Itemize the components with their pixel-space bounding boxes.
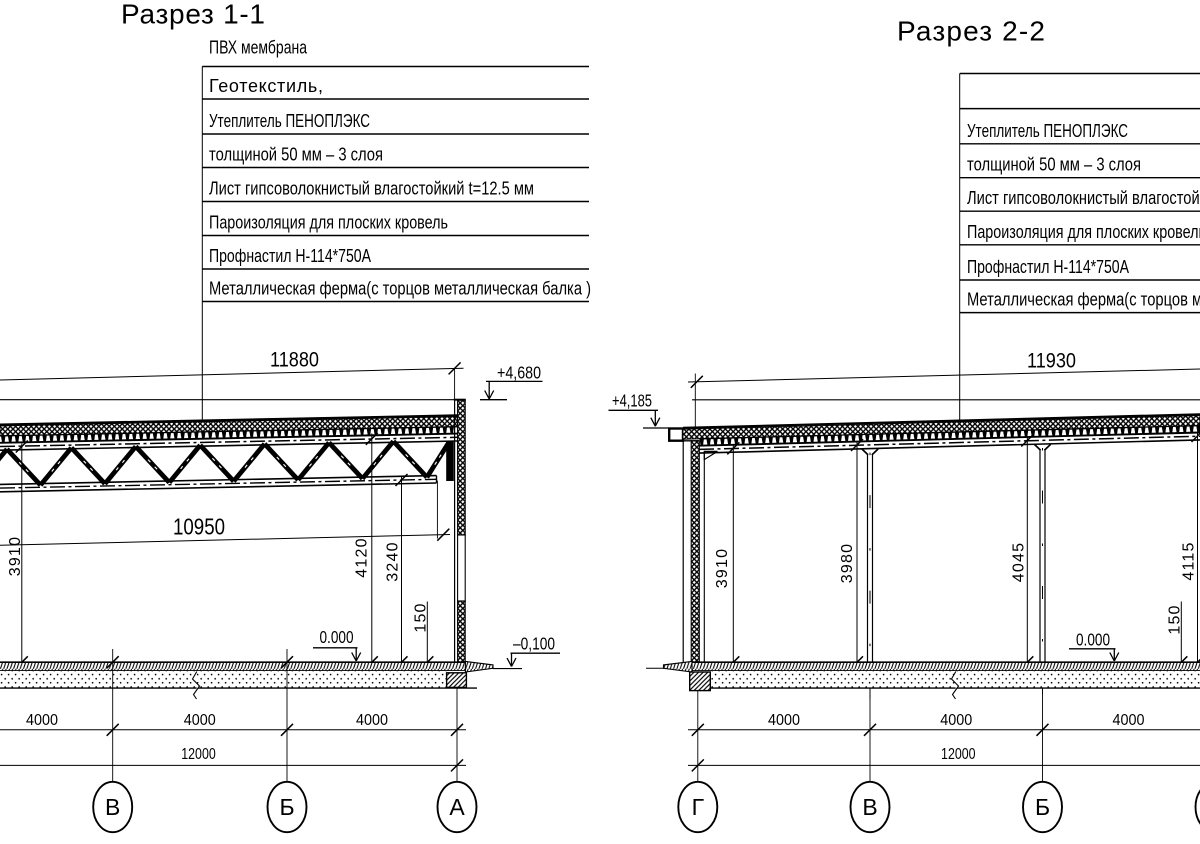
svg-text:4000: 4000 [356,712,388,729]
svg-text:0.000: 0.000 [320,627,354,647]
svg-text:12000: 12000 [181,746,216,763]
svg-text:+4,185: +4,185 [612,391,652,411]
svg-text:10950: 10950 [173,514,225,540]
svg-text:11880: 11880 [270,349,319,372]
svg-text:Утеплитель ПЕНОПЛЭКС: Утеплитель ПЕНОПЛЭКС [209,111,370,131]
svg-text:Профнастил Н-114*750А: Профнастил Н-114*750А [209,246,371,266]
svg-text:11930: 11930 [1027,350,1076,373]
svg-text:3980: 3980 [839,543,856,583]
svg-text:3240: 3240 [385,541,402,581]
svg-text:Пароизоляция для плоских крове: Пароизоляция для плоских кровель [209,213,448,233]
svg-text:4000: 4000 [1113,712,1145,729]
svg-text:Утеплитель ПЕНОПЛЭКС: Утеплитель ПЕНОПЛЭКС [967,121,1128,141]
svg-text:Б: Б [1035,794,1050,820]
svg-text:4000: 4000 [768,712,800,729]
svg-text:Лист гипсоволокнистый влагосто: Лист гипсоволокнистый влагостойкий t=12.… [967,188,1200,208]
svg-text:Металлическая ферма(с торцов м: Металлическая ферма(с торцов металлическ… [209,279,591,299]
svg-text:4000: 4000 [26,712,58,729]
svg-text:Б: Б [279,794,294,820]
svg-text:Г: Г [692,794,705,820]
svg-text:А: А [449,794,465,820]
svg-text:0.000: 0.000 [1076,630,1110,650]
svg-text:4000: 4000 [940,712,972,729]
svg-text:–0,100: –0,100 [513,634,555,654]
svg-text:толщиной 50 мм – 3 слоя: толщиной 50 мм – 3 слоя [209,145,383,165]
svg-text:12000: 12000 [941,746,976,763]
svg-text:Разрез 1-1: Разрез 1-1 [121,0,265,30]
svg-text:4115: 4115 [1181,541,1198,580]
svg-text:ПВХ мембрана: ПВХ мембрана [209,38,308,58]
svg-text:В: В [862,794,877,820]
svg-text:150: 150 [1167,604,1184,634]
svg-text:4000: 4000 [184,712,216,729]
svg-text:Разрез 2-2: Разрез 2-2 [897,16,1045,47]
svg-text:Геотекстиль,: Геотекстиль, [209,76,323,96]
svg-text:Профнастил Н-114*750А: Профнастил Н-114*750А [967,257,1129,277]
svg-text:3910: 3910 [7,536,24,576]
svg-text:150: 150 [413,602,430,632]
svg-text:В: В [105,794,120,820]
svg-text:Металлическая ферма(с торцов м: Металлическая ферма(с торцов металлическ… [967,290,1200,310]
svg-text:3910: 3910 [714,548,731,588]
svg-text:Пароизоляция для плоских крове: Пароизоляция для плоских кровель [967,222,1200,242]
svg-text:4120: 4120 [354,537,371,577]
svg-text:+4,680: +4,680 [497,363,541,383]
svg-text:толщиной 50 мм – 3 слоя: толщиной 50 мм – 3 слоя [967,155,1141,175]
svg-text:Лист гипсоволокнистый влагосто: Лист гипсоволокнистый влагостойкий t=12.… [209,179,534,199]
svg-text:4045: 4045 [1011,542,1028,582]
